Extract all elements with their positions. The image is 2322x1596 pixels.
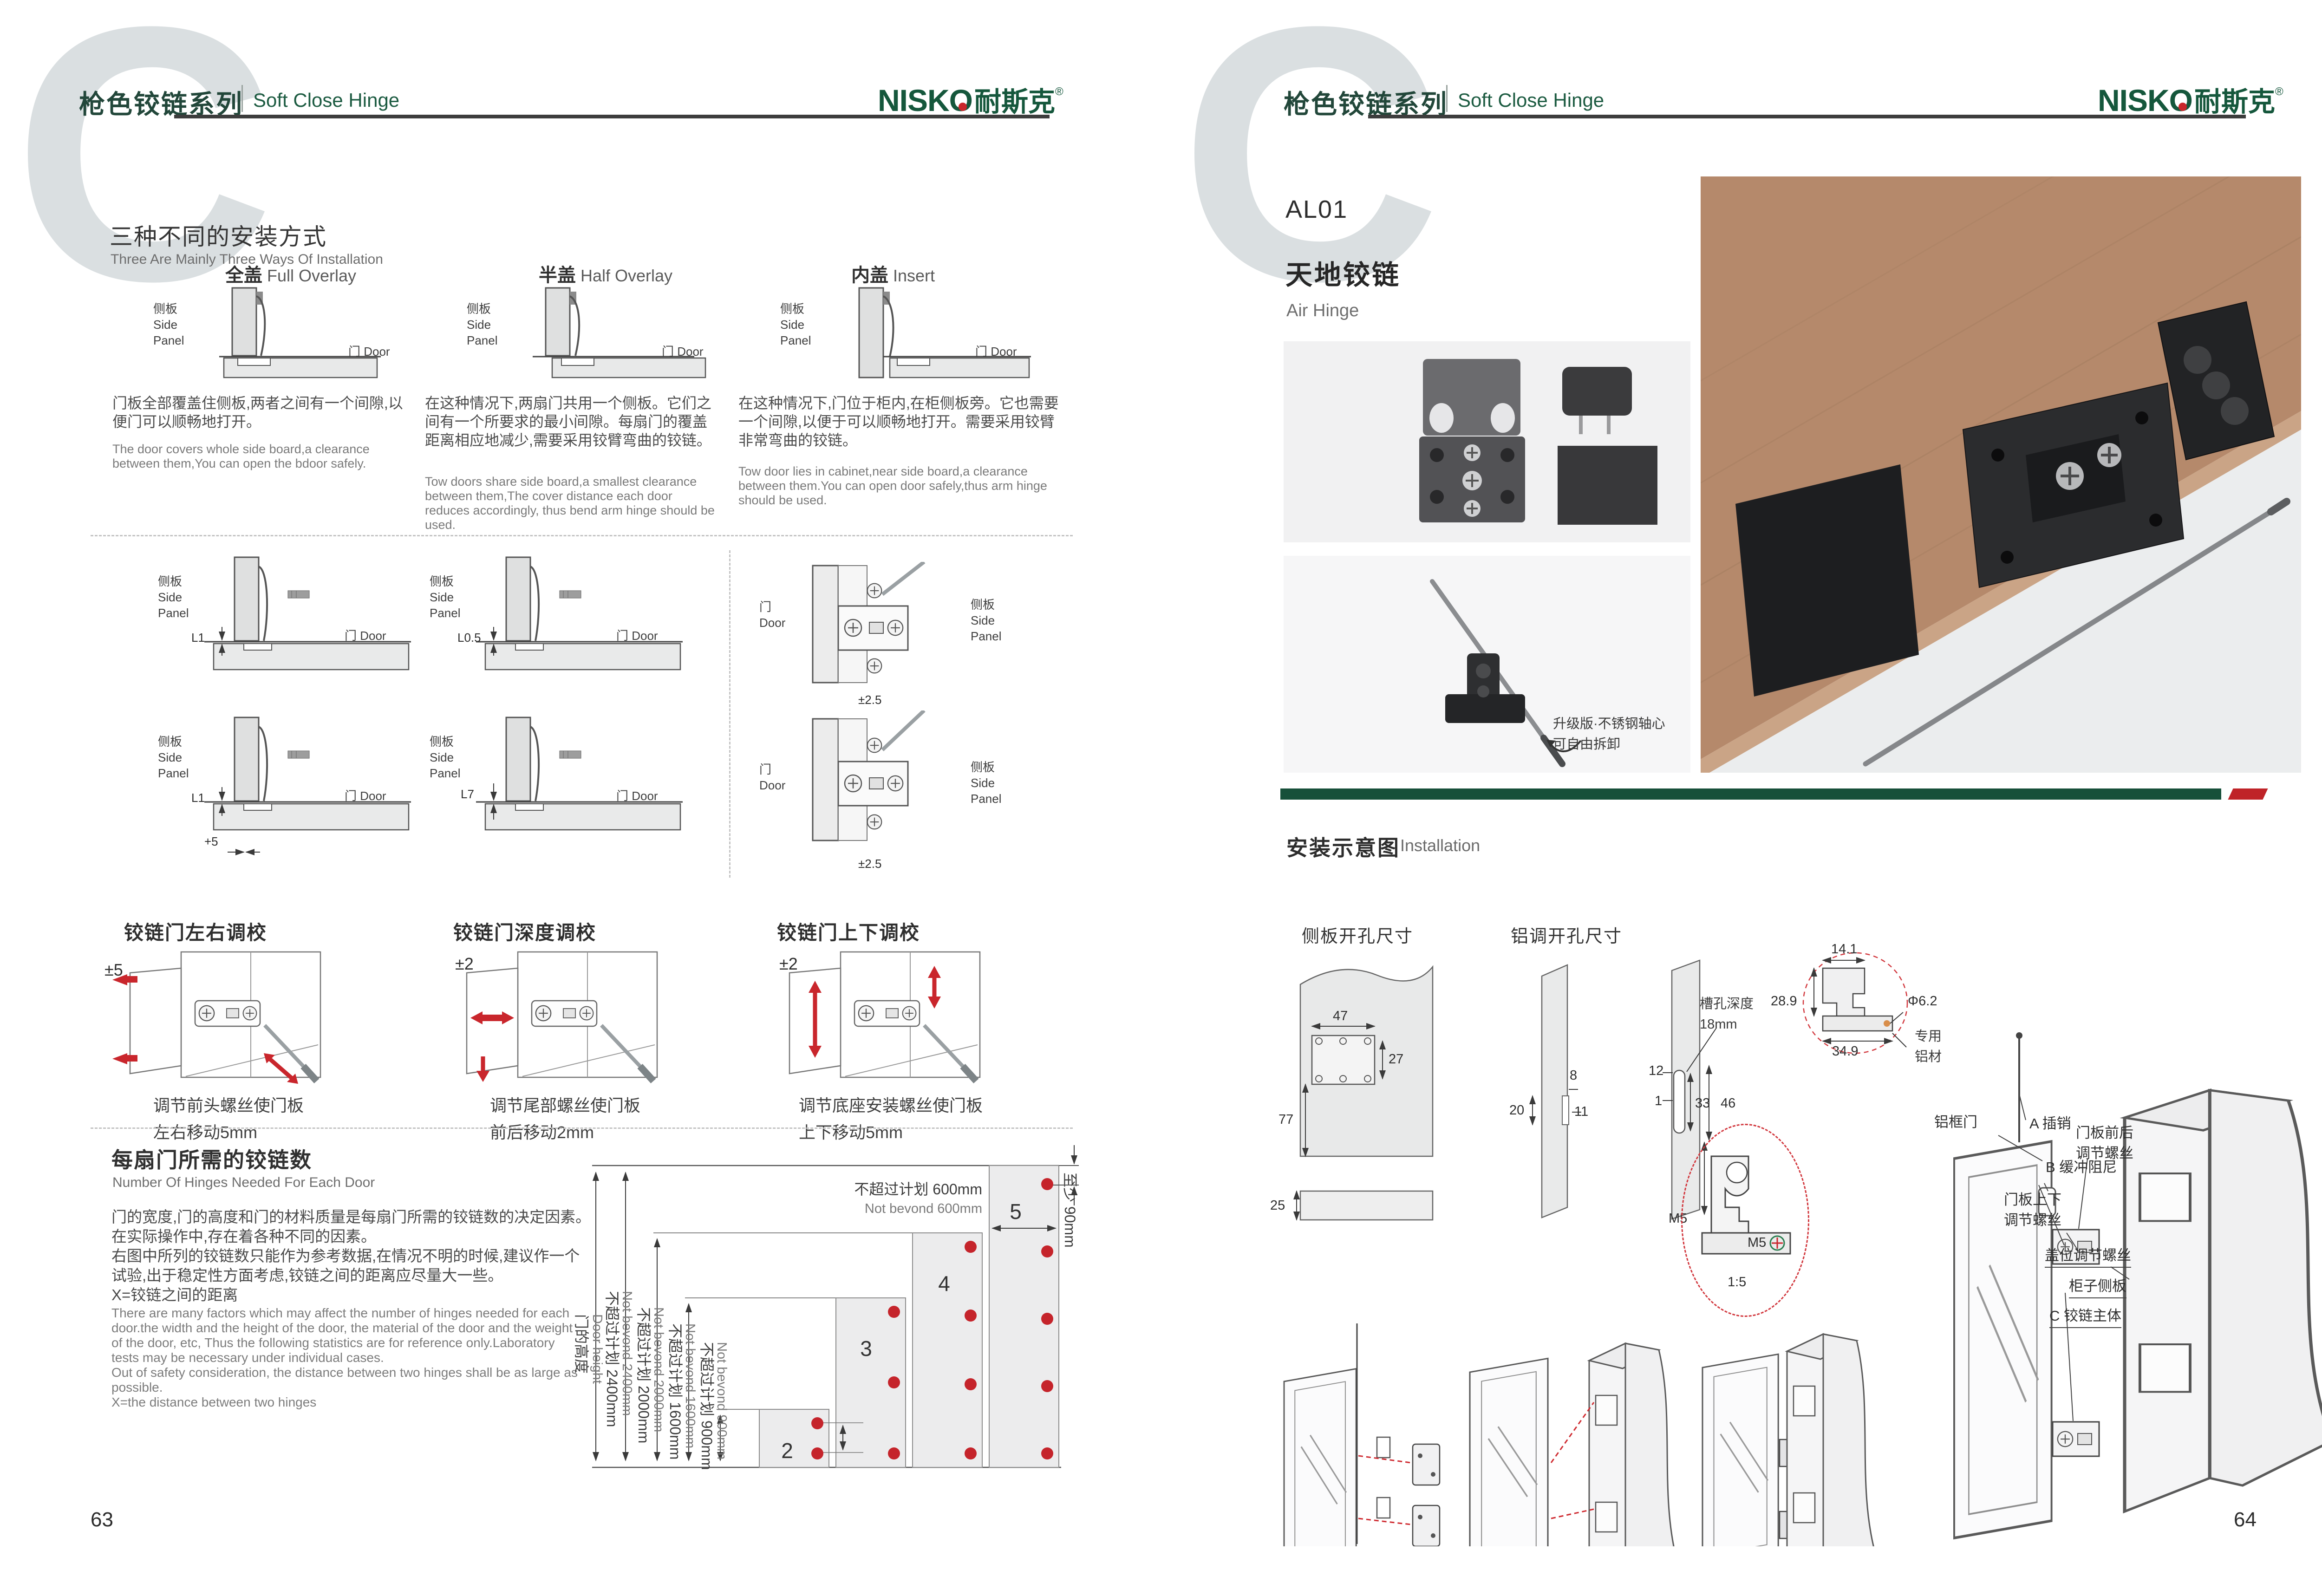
dimcell-2-sidepanel-label: 侧板SidePanel [430,573,481,621]
front-cell-2 [789,710,985,850]
page-subtitle: Soft Close Hinge [1458,89,1604,111]
logo-latin: NISKO [2098,83,2192,117]
method-3-name-en: Insert [893,266,935,285]
header-divider [241,85,243,112]
black-pad [1735,464,1919,697]
front-2-sidepanel-label: 侧板SidePanel [971,759,1017,807]
label-pin-a: A 插销 [2029,1114,2071,1134]
logo-dot-icon [959,103,967,111]
catalog-spread: C 枪色铰链系列 Soft Close Hinge NISKO耐斯克® 三种不同… [0,0,2322,1596]
dimcell-1-sidepanel-label: 侧板SidePanel [158,573,209,621]
count-paragraph-zh: 门的宽度,门的高度和门的材料质量是每扇门所需的铰链数的决定因素。 在实际操作中,… [111,1207,591,1305]
method-2-sidepanel-label: 侧板SidePanel [467,301,522,348]
product-photo-airhinge: 升级版·不锈钢轴心可自由拆卸 [1284,556,1690,773]
method-1-header: 全盖Full Overlay [225,260,356,287]
logo-cn: 耐斯克 [974,87,1055,117]
accent-strip-green [1280,788,2221,800]
chart-ylabel-zh: 门的高度 [573,1314,590,1374]
chart-edge-zh: 至少 90mm [1062,1173,1078,1248]
dimcell-2-door-label: 门 Door [616,628,658,644]
bar-4-count: 4 [938,1271,950,1296]
profile-141: 14.1 [1831,942,1857,957]
divider-dashed-2 [91,1127,1073,1129]
method-1-name-en: Full Overlay [267,266,356,285]
page-number-left: 63 [91,1508,113,1531]
product-photo-scene [1701,176,2301,773]
page-left: C 枪色铰链系列 Soft Close Hinge NISKO耐斯克® 三种不同… [0,0,1168,1596]
method-2-name-zh: 半盖 [539,265,576,286]
front-1-sidepanel-label: 侧板SidePanel [971,597,1017,644]
front-cell-1 [789,562,985,687]
logo-cn: 耐斯克 [2194,87,2275,117]
adjust-1-caption: 调节前头螺丝使门板左右移动5mm [153,1092,304,1146]
accent-strip-red [2228,788,2268,800]
method-1-door-label: 门 Door [348,344,390,359]
dimcell-3-sidepanel-label: 侧板SidePanel [158,734,209,781]
method-1-desc-zh: 门板全部覆盖住侧板,两者之间有一个间隙,以便门可以顺畅地打开。 [112,394,405,431]
adjust-2-diagram [448,947,662,1087]
label-cabinet-side: 柜子侧板 [2069,1276,2126,1298]
method-2-diagram [532,287,792,382]
page-subtitle: Soft Close Hinge [253,89,399,111]
dim-value-L7: L7 [461,787,474,801]
method-3-diagram [845,287,1105,382]
method-3-desc-en: Tow door lies in cabinet,near side board… [738,464,1063,508]
method-1-name-zh: 全盖 [225,265,262,286]
method-2-desc-en: Tow doors share side board,a smallest cl… [425,475,715,532]
method-3-desc-zh: 在这种情况下,门位于柜内,在柜侧板旁。它也需要一个间隙,以便于可以顺畅地打开。需… [738,394,1063,449]
chart-ylabel-en: Door height [590,1314,605,1384]
chart-edge-en: Not less than 90mm [1077,1173,1080,1292]
chart-level-900-zh: 不超过计划 900mm [698,1342,715,1470]
chart-level-2000-zh: 不超过计划 2000mm [635,1307,652,1443]
method-2-name-en: Half Overlay [580,266,672,285]
dim-value-L1-bottom: L1 [191,791,205,805]
product-code: AL01 [1285,195,1348,224]
dim-value-plus5: +5 [204,834,218,849]
bar-2-count: 2 [781,1439,793,1463]
adjust-3-title: 铰链门上下调校 [777,917,920,945]
chart-width-en: Not bevond 600mm [865,1201,982,1216]
method-3-door-label: 门 Door [975,344,1017,359]
adjust-2-title: 铰链门深度调校 [453,917,596,945]
front-dim-top: ±2.5 [858,693,881,707]
method-2-door-label: 门 Door [662,344,704,359]
dimcell-1-door-label: 门 Door [345,628,386,644]
dim-value-L05: L0.5 [457,631,481,645]
photo-annotation: 升级版·不锈钢轴心可自由拆卸 [1553,714,1665,755]
brand-logo: NISKO耐斯克® [878,80,1063,119]
header-rule [1368,115,2246,118]
header-divider [1446,85,1448,112]
dimcell-4-door-label: 门 Door [616,788,658,804]
bar-3-count: 3 [860,1336,872,1361]
count-paragraph-en: There are many factors which may affect … [111,1306,578,1410]
chart-level-1600-en: Not bevond 1600mm [683,1323,698,1448]
method-1-desc-en: The door covers whole side board,a clear… [112,442,403,471]
product-name-en: Air Hinge [1286,301,1359,321]
dimcell-3-door-label: 门 Door [345,788,386,804]
page-right: C 枪色铰链系列 Soft Close Hinge NISKO耐斯克® AL01… [1168,0,2322,1596]
front-2-door-label: 门Door [759,762,785,793]
dim-value-L1-top: L1 [191,631,205,645]
chart-width-zh: 不超过计划 600mm [854,1181,982,1198]
hinge-count-chart: 2 3 4 5 门的高度 Door height 不超过计划 2400mm No… [546,1138,1080,1491]
method-3-sidepanel-label: 侧板SidePanel [780,301,836,348]
chart-level-2400-zh: 不超过计划 2400mm [604,1291,620,1427]
adjust-1-diagram [111,947,325,1087]
chart-level-2400-en: Not bevond 2400mm [620,1291,634,1416]
chart-level-900-en: Not bevond 900mm [714,1342,729,1459]
label-cover-screw: 盖位调节螺丝 [2045,1245,2131,1268]
dim-cell-3 [200,713,418,861]
dim-cell-2 [471,553,690,687]
brand-logo: NISKO耐斯克® [2098,80,2283,119]
label-up-down-screw: 门板上下调节螺丝 [2004,1190,2061,1231]
cover-plate-photo [1558,446,1657,525]
chart-level-2000-en: Not bevond 2000mm [651,1307,666,1432]
method-2-desc-zh: 在这种情况下,两扇门共用一个侧板。它们之间有一个所要求的最小间隙。每扇门的覆盖距… [425,394,717,449]
adjust-1-title: 铰链门左右调校 [124,917,267,945]
chart-level-1600-zh: 不超过计划 1600mm [667,1323,684,1459]
registered-mark: ® [2275,85,2283,98]
hinge-plate-photo [1419,359,1525,522]
front-dim-bottom: ±2.5 [858,857,881,871]
adjust-3-diagram [771,947,985,1087]
front-1-door-label: 门Door [759,599,785,631]
method-3-name-zh: 内盖 [851,265,888,286]
count-title-en: Number Of Hinges Needed For Each Door [112,1175,375,1191]
damper-photo [1562,367,1632,434]
page-number-right: 64 [2234,1508,2257,1531]
dim-cell-1 [200,553,418,687]
dimcell-4-sidepanel-label: 侧板SidePanel [430,734,481,781]
product-name-zh: 天地铰链 [1285,253,1401,292]
label-front-back-screw: 门板前后调节螺丝 [2076,1123,2133,1164]
install-title-zh: 安装示意图 [1286,831,1400,862]
registered-mark: ® [1055,85,1063,98]
method-3-header: 内盖Insert [851,260,935,287]
dim-cell-4 [471,713,690,847]
method-1-sidepanel-label: 侧板SidePanel [153,301,209,348]
label-alu-frame-door: 铝框门 [1934,1112,1977,1133]
divider-dashed-1 [91,535,1073,536]
drill-alu-title: 铝调开孔尺寸 [1511,922,1622,947]
method-1-diagram [218,287,478,382]
logo-latin: NISKO [878,83,972,117]
method-2-header: 半盖Half Overlay [539,260,672,287]
label-hinge-body-c: C 铰链主体 [2049,1306,2121,1328]
product-photo-parts [1284,341,1690,542]
logo-dot-icon [2179,103,2187,111]
drill-side-title: 侧板开孔尺寸 [1302,922,1413,947]
count-title-zh: 每扇门所需的铰链数 [111,1143,312,1174]
bar-5-count: 5 [1010,1199,1022,1224]
divider-dashed-vertical [729,550,731,878]
exploded-assembly [1277,998,2322,1546]
header-rule [174,115,1050,118]
install-title-en: Installation [1400,836,1480,855]
section-ways-title: 三种不同的安装方式 [110,218,327,252]
